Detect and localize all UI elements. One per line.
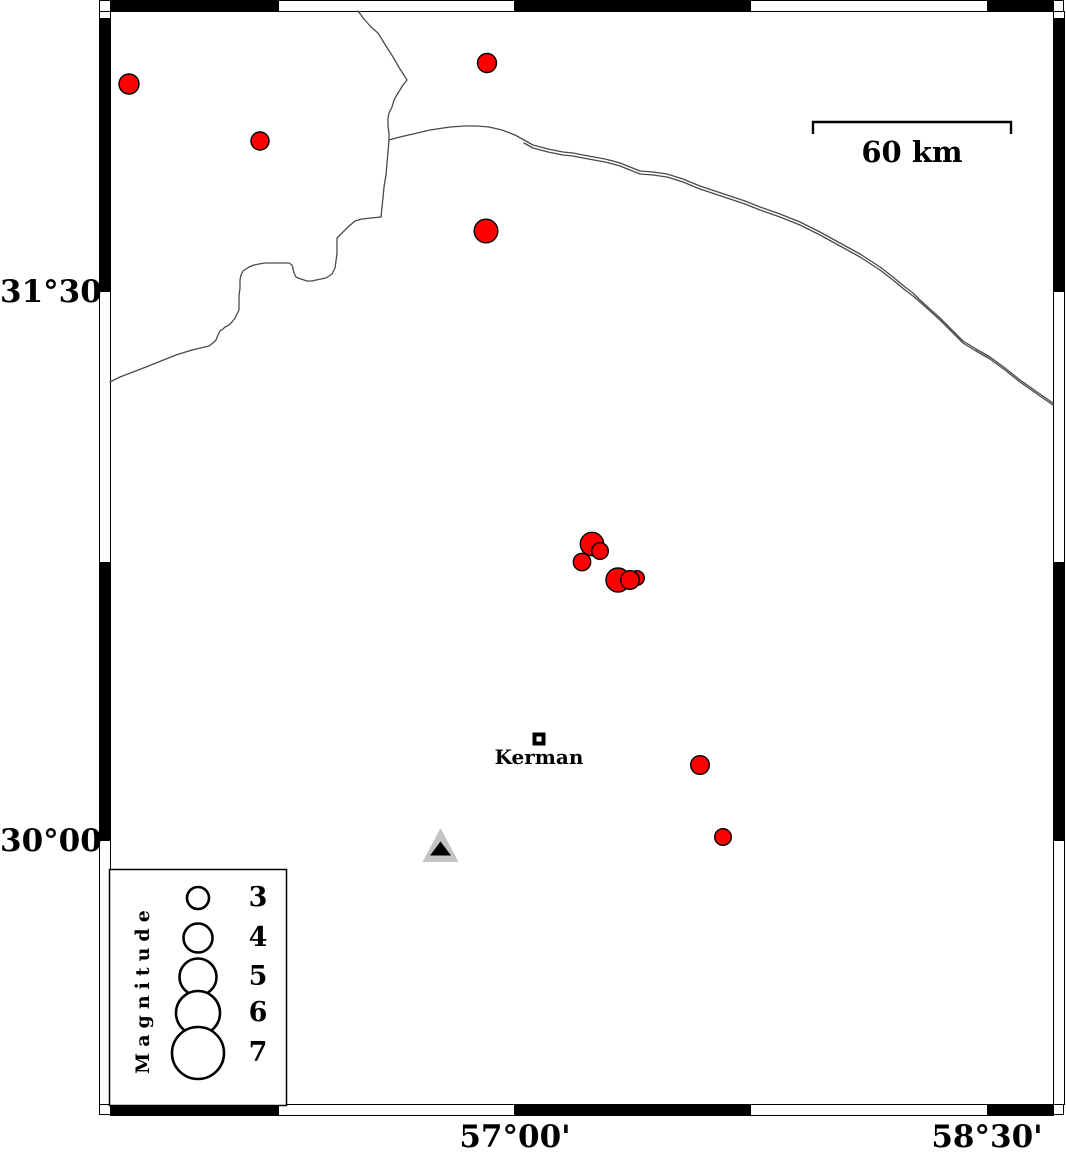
legend-value-5: 5 xyxy=(236,960,280,994)
scale-bar-bracket xyxy=(813,122,1011,134)
map-canvas xyxy=(0,0,1066,1154)
city-label: Kerman xyxy=(469,745,609,769)
scale-bar-label: 60 km xyxy=(832,135,992,169)
scale-bar xyxy=(813,122,1011,134)
lat-label-30-00: 30°00' xyxy=(0,820,90,862)
legend-value-4: 4 xyxy=(236,921,280,955)
lat-label-31-30: 31°30' xyxy=(0,271,90,313)
boundary-lines xyxy=(110,11,1053,405)
province-boundary-west xyxy=(110,217,381,382)
seismicity-map-page: { "axis_labels": { "left": [ {"text": "3… xyxy=(0,0,1066,1154)
legend-value-7: 7 xyxy=(236,1036,280,1070)
province-boundary-north xyxy=(358,11,407,217)
lon-label-57-00: 57°00' xyxy=(435,1119,595,1155)
legend-title: Magnitude xyxy=(130,884,156,1094)
legend-value-3: 3 xyxy=(236,881,280,915)
earthquake-epicenters xyxy=(119,54,731,846)
legend-value-6: 6 xyxy=(236,996,280,1030)
lon-label-58-30: 58°30' xyxy=(907,1119,1066,1155)
road-line-lower xyxy=(524,143,1053,405)
station-triangle xyxy=(423,828,459,862)
city-marker-kerman xyxy=(533,733,546,746)
